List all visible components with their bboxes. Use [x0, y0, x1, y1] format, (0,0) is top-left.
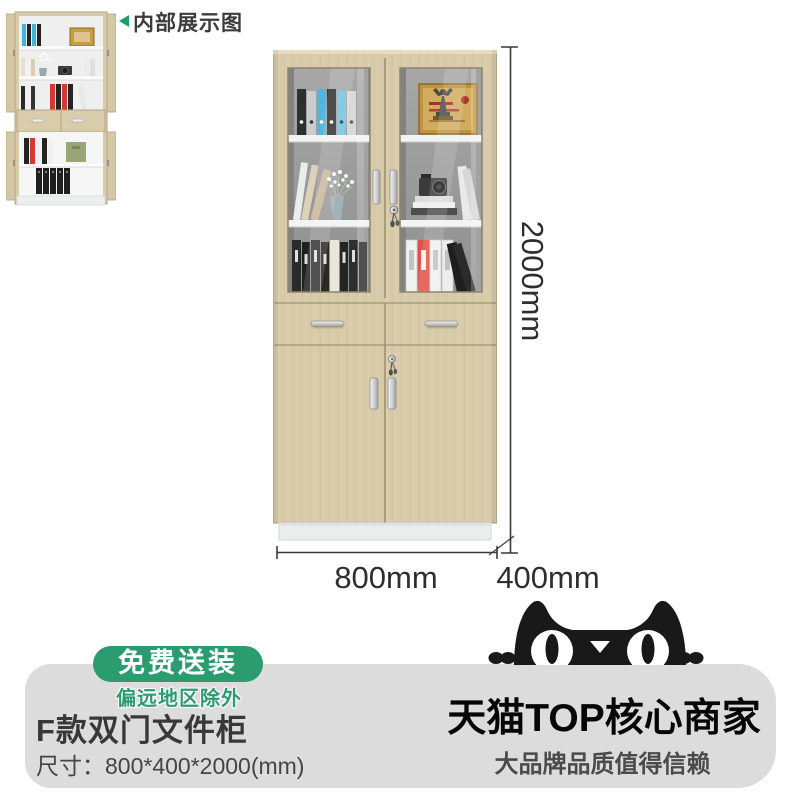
product-title: F款双门文件柜: [36, 705, 248, 750]
height-dimension-label: 2000mm: [514, 221, 550, 342]
left-triangle-icon: [119, 15, 129, 27]
product-size: 尺寸：800*400*2000(mm): [36, 747, 304, 781]
width-dimension-label: 800mm: [334, 560, 437, 596]
width-dimension-line: [277, 546, 497, 559]
thumb-plinth: [17, 196, 105, 205]
cabinet-illustration: [273, 50, 497, 542]
brand-tagline: 大品牌品质值得信赖: [430, 744, 775, 779]
brand-headline: 天猫TOP核心商家: [430, 687, 778, 743]
thumbnail-caption: 内部展示图: [133, 7, 243, 37]
thumb-drawers: [17, 110, 105, 132]
depth-dimension-label: 400mm: [496, 560, 599, 596]
thumbnail-interior-illustration: [6, 10, 116, 210]
free-shipping-badge: 免费送装: [93, 646, 263, 682]
tmall-cat-icon: [480, 599, 712, 665]
